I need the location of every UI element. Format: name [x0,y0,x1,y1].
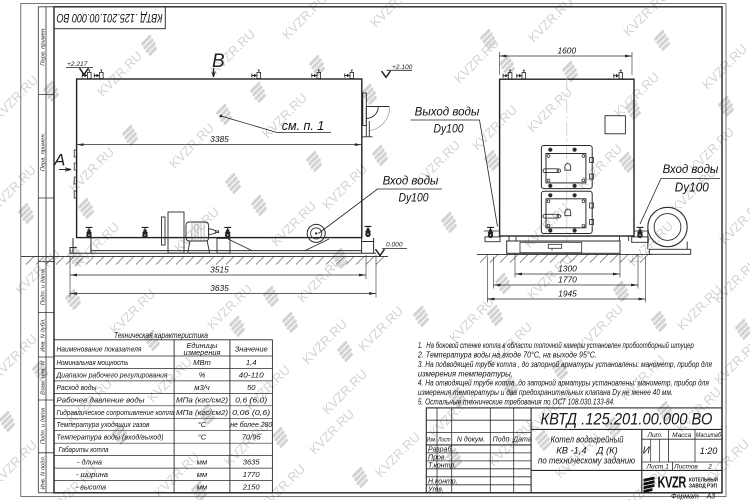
svg-text:Dy100: Dy100 [434,122,464,136]
svg-text:Номинальная мощность: Номинальная мощность [57,358,129,367]
svg-text:A: A [53,151,65,170]
svg-text:- длина: - длина [77,458,102,467]
svg-text:3635: 3635 [243,458,261,467]
svg-text:1:20: 1:20 [700,446,718,456]
svg-text:МПа (кгс/см2): МПа (кгс/см2) [176,395,228,404]
svg-text:Формат А3: Формат А3 [671,493,715,500]
svg-text:- ширина: - ширина [76,470,108,479]
svg-text:Габариты котла: Габариты котла [59,445,109,454]
svg-text:Н.контр.: Н.контр. [428,478,458,485]
svg-text:Гидравлическое сопротивление к: Гидравлическое сопротивление котла [57,408,175,417]
svg-text:Лист: Лист [437,437,451,444]
svg-text:Котел водогрейный: Котел водогрейный [551,435,624,445]
svg-text:Перв. примен.: Перв. примен. [40,133,46,172]
svg-text:измерения температуры и два пр: измерения температуры и два предохраните… [418,388,673,397]
svg-text:м3/ч: м3/ч [194,383,210,392]
svg-text:N докум.: N докум. [457,436,485,444]
svg-text:Температура воды (вход/выход): Температура воды (вход/выход) [57,433,164,442]
svg-text:°С: °С [198,433,207,442]
svg-text:не более 280: не более 280 [230,420,273,429]
svg-text:70/95: 70/95 [242,433,262,442]
svg-text:Вход воды: Вход воды [663,164,719,176]
svg-text:2: 2 [707,464,712,471]
svg-text:0,6 (6,0): 0,6 (6,0) [235,395,268,404]
svg-text:измерения температуры.: измерения температуры. [418,369,513,378]
svg-text:Техническая характеристика: Техническая характеристика [114,330,208,340]
svg-text:Выход воды: Выход воды [415,107,480,119]
svg-text:измерения: измерения [184,348,221,357]
svg-text:МПа (кгс/см2): МПа (кгс/см2) [176,408,228,417]
svg-text:3. На подводящей трубе котла: 3. На подводящей трубе котла , до запорн… [418,360,713,369]
svg-text:3385: 3385 [210,134,229,144]
svg-text:50: 50 [247,383,256,392]
svg-text:Dy100: Dy100 [675,181,709,195]
svg-text:Вход воды: Вход воды [383,176,439,188]
svg-text:ЗАВОД РЭП: ЗАВОД РЭП [689,484,717,490]
svg-text:по техническому заданию: по техническому заданию [538,456,635,466]
svg-text:Листов: Листов [673,464,698,471]
svg-text:Масса: Масса [672,432,692,439]
svg-text:КВТД .125.201.00.000 ВО: КВТД .125.201.00.000 ВО [57,11,163,23]
svg-text:Подп. и дата: Подп. и дата [40,407,46,444]
svg-text:Дата: Дата [512,437,532,444]
svg-text:МВт: МВт [193,358,211,367]
svg-text:1. На боковой стенке котла в: 1. На боковой стенке котла в области топ… [418,341,694,350]
svg-text:КВ -1,4 Д (К): КВ -1,4 Д (К) [556,446,617,456]
svg-text:мм: мм [197,458,208,467]
svg-text:Т.контр.: Т.контр. [428,462,456,469]
svg-text:1,4: 1,4 [246,358,257,367]
svg-text:Подп. и дата: Подп. и дата [40,268,46,305]
svg-text:мм: мм [197,470,208,479]
svg-text:Лит.: Лит. [646,432,662,439]
svg-text:Пров.: Пров. [428,454,447,461]
svg-text:Изм.: Изм. [427,437,437,444]
svg-text:И: И [643,446,651,457]
svg-text:°С: °С [198,420,207,429]
svg-text:Масштаб: Масштаб [696,431,721,439]
svg-text:4. На отводящей трубе котла ,: 4. На отводящей трубе котла ,до запорной… [418,379,710,388]
svg-text:2150: 2150 [242,482,261,491]
svg-text:0.000: 0.000 [386,242,403,249]
svg-text:40-110: 40-110 [239,370,265,379]
svg-text:см. п. 1: см. п. 1 [282,119,325,133]
svg-text:Наименование показателя: Наименование показателя [57,345,142,354]
svg-text:3635: 3635 [210,283,229,293]
svg-text:2. Температура воды на входе: 2. Температура воды на входе 70°С, на вы… [417,350,597,359]
svg-text:Перв. примен.: Перв. примен. [40,27,46,66]
svg-text:5. Остальные технические треб: 5. Остальные технические требования по О… [418,398,615,407]
svg-text:1770: 1770 [243,470,261,479]
svg-text:Рабочее давление воды: Рабочее давление воды [57,395,145,404]
svg-text:1600: 1600 [557,45,576,55]
svg-text:1770: 1770 [558,274,577,284]
svg-text:0,06 (0,6): 0,06 (0,6) [232,408,271,417]
svg-text:1: 1 [665,464,669,471]
svg-text:Инв. N подл.: Инв. N подл. [40,456,46,490]
svg-text:%: % [199,370,206,379]
svg-text:Инв. N дубл.: Инв. N дубл. [40,318,46,352]
svg-text:Утв.: Утв. [427,486,444,493]
svg-text:Расход воды: Расход воды [57,383,97,392]
svg-text:Температура уходящих газов: Температура уходящих газов [57,420,150,429]
svg-text:1300: 1300 [558,263,577,273]
svg-text:Значение: Значение [235,345,268,354]
svg-text:КОТЕЛЬНЫЙ: КОТЕЛЬНЫЙ [689,475,718,483]
svg-text:Подп.: Подп. [493,436,512,444]
svg-text:- высота: - высота [76,482,106,491]
svg-text:КВТД .125.201.00.000 ВО: КВТД .125.201.00.000 ВО [541,411,713,429]
svg-text:Взам. инв. N: Взам. инв. N [40,360,46,395]
svg-text:3515: 3515 [210,264,229,274]
svg-text:+2.217: +2.217 [67,61,88,68]
svg-text:мм: мм [197,482,208,491]
svg-text:Диапазон рабочего регулировани: Диапазон рабочего регулирования [56,370,168,379]
svg-text:Разраб.: Разраб. [428,445,453,453]
svg-text:Dy100: Dy100 [399,191,429,205]
svg-text:1945: 1945 [558,288,577,298]
svg-text:KVZR: KVZR [658,475,687,492]
svg-text:Лист: Лист [646,464,664,471]
